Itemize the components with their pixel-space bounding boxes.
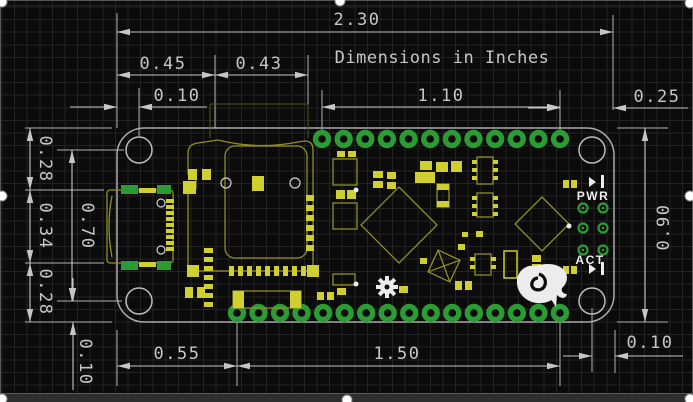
- pin-hole: [556, 135, 564, 143]
- mounting-hole-bottom-left: [126, 288, 152, 314]
- extension-lines: [25, 13, 668, 386]
- dim-board-width: 2.30: [334, 10, 381, 30]
- pin-hole: [470, 309, 478, 317]
- pin-hole: [405, 309, 413, 317]
- pin-hole: [470, 135, 478, 143]
- ic-diamond-2: [515, 197, 569, 251]
- mounting-hole-top-right: [579, 137, 605, 163]
- pin-hole: [318, 135, 326, 143]
- led-pad-grid: [579, 204, 608, 255]
- test-point: [157, 246, 165, 254]
- ic-diamond-1: [361, 187, 437, 263]
- pin-hole: [513, 135, 521, 143]
- pin-hole: [383, 135, 391, 143]
- pin-hole: [513, 309, 521, 317]
- pin-hole: [427, 309, 435, 317]
- dim-bottom-left-offset: 0.55: [154, 344, 201, 364]
- pin-hole: [362, 309, 370, 317]
- dim-bottom-pin-row: 1.50: [374, 344, 421, 364]
- dim-left-mid: 0.34: [35, 203, 55, 250]
- led-bar-icon: [601, 175, 604, 188]
- selection-handle-right-center[interactable]: [685, 191, 693, 202]
- ic-soic-3: [470, 254, 496, 275]
- pin-hole: [341, 309, 349, 317]
- pwr-label: PWR: [577, 189, 610, 203]
- dim-board-height: 0.90: [654, 204, 674, 251]
- pin-hole: [492, 309, 500, 317]
- dim-hole-inset-top: 0.10: [154, 86, 201, 106]
- ic-soic-2: [472, 193, 498, 217]
- dim-left-bottom: 0.28: [35, 269, 55, 316]
- pin-hole: [276, 309, 284, 317]
- pcb-dimension-svg: 2.30 Dimensions in Inches 0.45 0.43 0.10…: [0, 0, 693, 393]
- pin-hole: [340, 135, 348, 143]
- pin1-marker: [567, 224, 572, 229]
- pin-hole: [448, 135, 456, 143]
- sd-castellation-row: [229, 266, 306, 276]
- pin-hole: [255, 309, 263, 317]
- dim-usb-span: 0.45: [140, 54, 187, 74]
- selection-handle-bottom-right[interactable]: [685, 394, 693, 402]
- dim-hole-inset-right: 0.10: [627, 333, 674, 353]
- adafruit-logo: [517, 264, 567, 307]
- crystal-x: [428, 250, 460, 282]
- drawing-title: Dimensions in Inches: [335, 48, 550, 68]
- gear-icon: [376, 276, 398, 298]
- pcb-board: PWR ACT: [107, 104, 614, 322]
- top-pin-row: [313, 130, 569, 148]
- act-label: ACT: [575, 253, 604, 267]
- led-pad-center: [582, 207, 585, 210]
- pin-hole: [535, 309, 543, 317]
- sd-card-slot: [183, 104, 319, 277]
- inductor: [233, 291, 301, 308]
- mounting-hole-top-left: [126, 137, 152, 163]
- pin-hole: [319, 309, 327, 317]
- pin-hole: [491, 135, 499, 143]
- led-pad-center: [602, 227, 605, 230]
- test-point: [290, 178, 300, 188]
- pad-ladder: [204, 248, 213, 307]
- led-pad-center: [582, 227, 585, 230]
- bottom-pin-row: [228, 304, 569, 322]
- selection-handle-bottom-center[interactable]: [342, 395, 353, 402]
- led-pad-center: [582, 249, 585, 252]
- pin-hole: [405, 135, 413, 143]
- led-pad-center: [602, 249, 605, 252]
- pin-hole: [449, 309, 457, 317]
- pin-hole: [556, 309, 564, 317]
- pin-hole: [535, 135, 543, 143]
- led-pad-center: [602, 207, 605, 210]
- dim-sd-span: 0.43: [236, 54, 283, 74]
- crystal-can: [504, 251, 517, 278]
- dimension-lines: [30, 32, 688, 390]
- screenshot-stage: 2.30 Dimensions in Inches 0.45 0.43 0.10…: [0, 0, 693, 402]
- dim-left-top: 0.28: [35, 136, 55, 183]
- dim-hole-span-vertical: 0.70: [77, 203, 97, 250]
- ic-soic-1: [472, 157, 498, 184]
- pin-hole: [298, 309, 306, 317]
- pin-hole: [426, 135, 434, 143]
- pin-hole: [361, 135, 369, 143]
- test-point: [221, 178, 231, 188]
- sd-card-inserted-outline: [210, 104, 308, 138]
- dim-hole-inset-bottom: 0.10: [75, 339, 95, 386]
- selection-handle-top-right[interactable]: [685, 0, 693, 9]
- selection-handle-bottom-left[interactable]: [0, 394, 8, 402]
- led-arrow-icon: [589, 177, 596, 187]
- dim-pin-to-edge-right: 0.25: [634, 87, 681, 107]
- dim-top-pin-row: 1.10: [418, 86, 465, 106]
- test-point: [157, 199, 165, 207]
- pin-hole: [384, 309, 392, 317]
- pin-hole: [233, 309, 241, 317]
